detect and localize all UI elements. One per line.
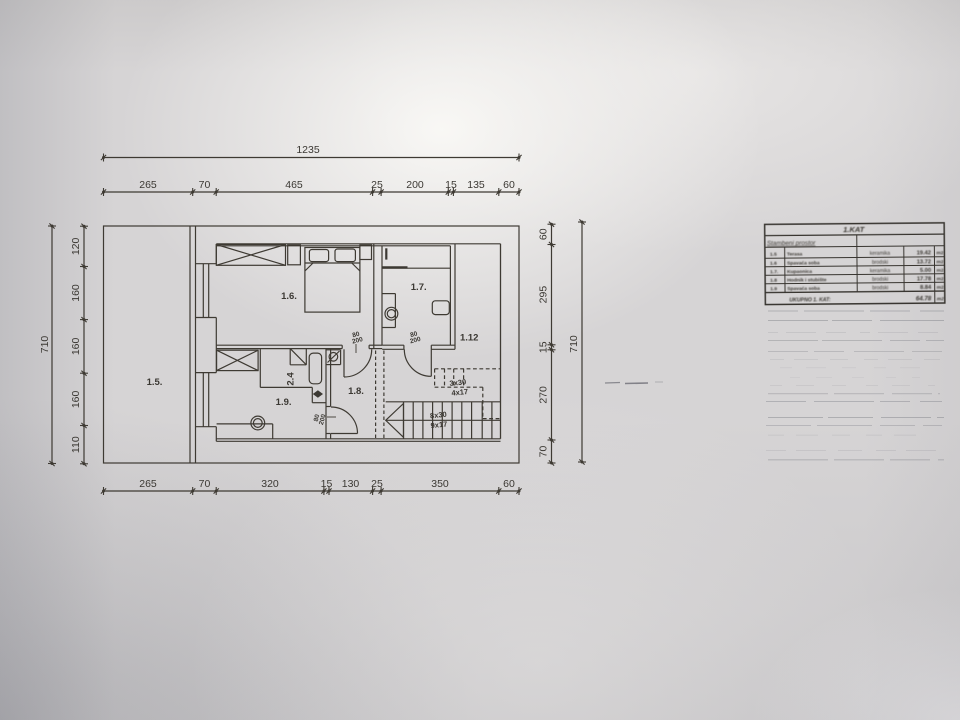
svg-text:60: 60	[538, 228, 550, 240]
svg-text:320: 320	[261, 478, 279, 490]
svg-text:160: 160	[70, 284, 82, 302]
svg-text:1.9: 1.9	[770, 286, 777, 292]
svg-text:710: 710	[568, 335, 580, 353]
svg-text:130: 130	[342, 478, 360, 490]
svg-text:120: 120	[70, 237, 82, 255]
svg-text:m2: m2	[937, 296, 944, 302]
svg-text:1.12: 1.12	[460, 333, 479, 344]
svg-text:1.9.: 1.9.	[276, 397, 292, 408]
svg-text:465: 465	[285, 179, 303, 191]
svg-text:UKUPNO 1. KAT:: UKUPNO 1. KAT:	[789, 297, 831, 303]
svg-text:Stambeni prostor: Stambeni prostor	[767, 240, 817, 247]
svg-text:1.6.: 1.6.	[281, 291, 297, 302]
svg-text:4x17: 4x17	[451, 387, 469, 398]
svg-text:9x17: 9x17	[430, 419, 448, 430]
svg-text:8.84: 8.84	[920, 285, 932, 291]
svg-text:1235: 1235	[296, 144, 320, 156]
svg-text:25: 25	[371, 478, 383, 490]
svg-text:160: 160	[70, 337, 82, 355]
svg-text:m2: m2	[936, 250, 943, 256]
svg-text:13.72: 13.72	[917, 259, 931, 265]
svg-text:1.5: 1.5	[770, 251, 777, 257]
svg-text:19.42: 19.42	[917, 250, 931, 256]
svg-text:70: 70	[199, 478, 211, 490]
svg-text:160: 160	[70, 390, 82, 408]
svg-text:710: 710	[39, 336, 51, 354]
svg-text:1.5.: 1.5.	[147, 377, 163, 388]
svg-text:2.4: 2.4	[286, 372, 297, 386]
svg-text:350: 350	[431, 478, 449, 490]
svg-text:265: 265	[139, 179, 157, 191]
svg-text:m2: m2	[937, 276, 944, 282]
svg-text:Kupaonica: Kupaonica	[787, 269, 812, 275]
svg-text:1.8: 1.8	[770, 278, 777, 284]
svg-text:1.7.: 1.7.	[770, 269, 779, 275]
svg-text:295: 295	[538, 286, 550, 304]
svg-text:m2: m2	[936, 259, 943, 265]
svg-text:15: 15	[321, 478, 333, 490]
svg-text:70: 70	[538, 446, 550, 458]
svg-text:200: 200	[351, 336, 364, 346]
svg-text:60: 60	[503, 179, 515, 191]
svg-text:keramika: keramika	[870, 268, 891, 274]
svg-text:Terasa: Terasa	[787, 251, 803, 257]
svg-text:64.78: 64.78	[916, 295, 932, 302]
svg-text:3x30: 3x30	[449, 377, 467, 388]
svg-text:265: 265	[139, 478, 157, 490]
svg-text:5.00: 5.00	[920, 268, 931, 274]
svg-text:m2: m2	[937, 268, 944, 274]
svg-text:1.7.: 1.7.	[411, 282, 427, 293]
svg-text:keramika: keramika	[870, 250, 891, 256]
svg-text:1.8.: 1.8.	[348, 386, 364, 397]
svg-text:Spavaća soba: Spavaća soba	[787, 286, 820, 292]
svg-text:1.6: 1.6	[770, 261, 777, 267]
svg-text:110: 110	[70, 436, 82, 453]
svg-text:Hodnik i stubište: Hodnik i stubište	[787, 277, 827, 283]
svg-text:brodski: brodski	[872, 260, 888, 266]
svg-text:70: 70	[199, 179, 211, 191]
svg-text:m2: m2	[937, 285, 944, 291]
svg-text:15: 15	[445, 179, 457, 191]
svg-text:200: 200	[406, 179, 424, 191]
svg-text:270: 270	[538, 386, 550, 404]
svg-text:60: 60	[503, 478, 515, 490]
svg-text:17.78: 17.78	[917, 276, 931, 282]
svg-text:brodski: brodski	[872, 285, 888, 291]
svg-text:135: 135	[467, 179, 485, 191]
svg-text:25: 25	[371, 179, 383, 191]
svg-text:15: 15	[538, 341, 550, 353]
svg-text:brodski: brodski	[872, 277, 888, 283]
svg-text:200: 200	[409, 336, 422, 346]
svg-text:Spavaća soba: Spavaća soba	[787, 260, 820, 266]
svg-text:1.KAT: 1.KAT	[843, 225, 866, 234]
